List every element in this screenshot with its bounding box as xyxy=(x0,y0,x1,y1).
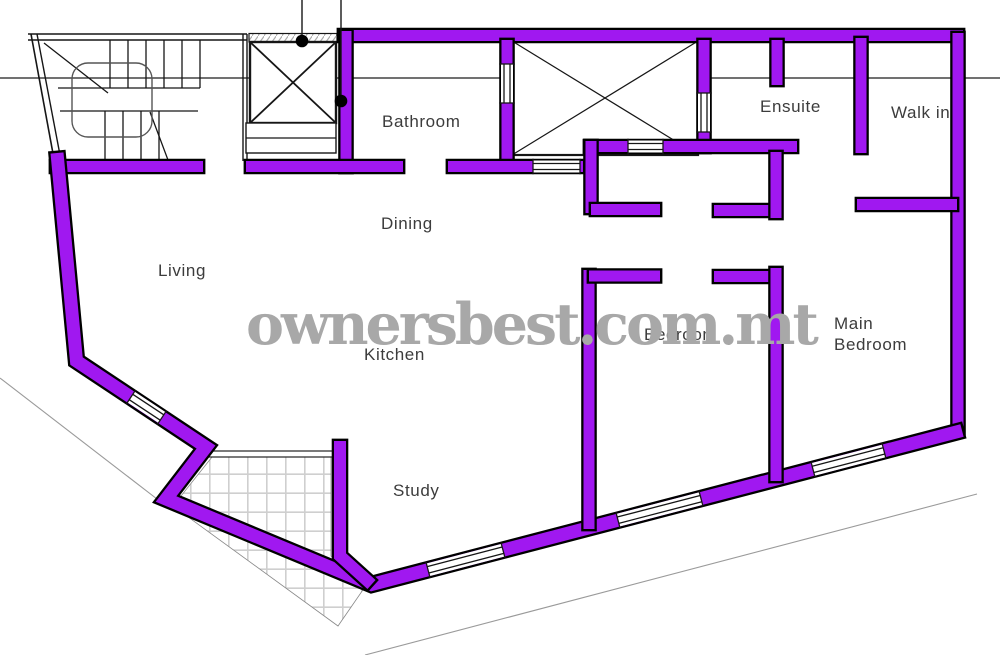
floor-plan-canvas: Bathroom Dining Living Kitchen Study Bed… xyxy=(0,0,1000,655)
room-label-bathroom: Bathroom xyxy=(382,112,461,132)
internal-shaft xyxy=(512,41,698,155)
room-label-main-bedroom-line2: Bedroom xyxy=(834,334,907,355)
room-label-kitchen: Kitchen xyxy=(364,345,425,365)
room-label-main-bedroom-line1: Main xyxy=(834,313,907,334)
staircase xyxy=(28,34,247,161)
walls xyxy=(49,29,966,587)
room-label-study: Study xyxy=(393,481,439,501)
room-label-dining: Dining xyxy=(381,214,433,234)
lift-shaft xyxy=(246,34,337,154)
room-label-living: Living xyxy=(158,261,206,281)
room-label-ensuite: Ensuite xyxy=(760,97,821,117)
room-label-main-bedroom: Main Bedroom xyxy=(834,313,907,355)
room-label-bedroom: Bedroom xyxy=(644,325,717,345)
room-label-walk-in: Walk in xyxy=(891,103,950,123)
